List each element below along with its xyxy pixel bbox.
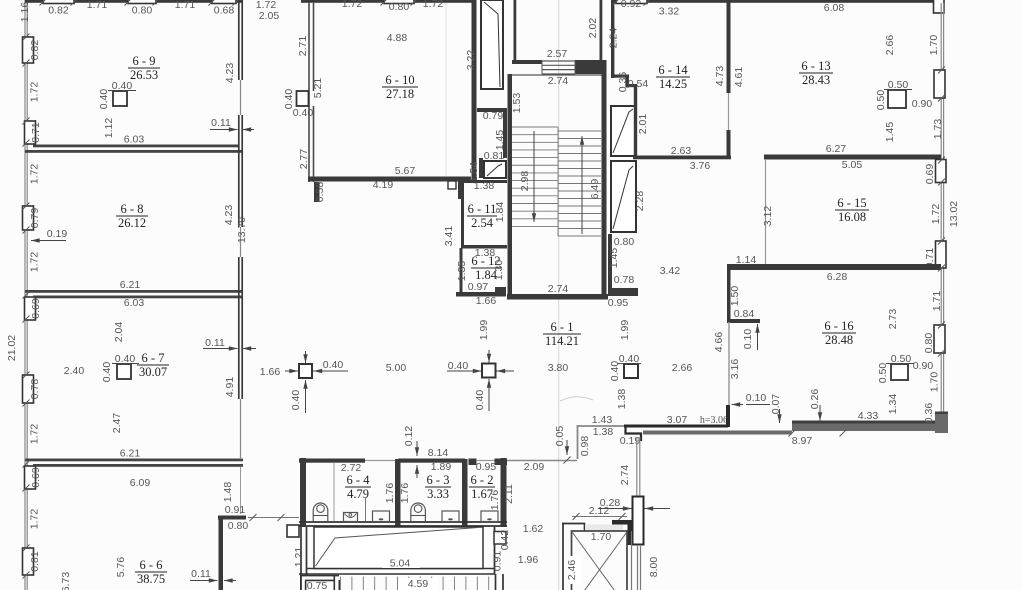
svg-text:1.66: 1.66	[260, 366, 281, 378]
svg-text:3.32: 3.32	[659, 6, 680, 18]
svg-text:3.16: 3.16	[729, 359, 741, 380]
svg-text:5.76: 5.76	[115, 557, 127, 578]
svg-text:1.34: 1.34	[887, 394, 899, 415]
svg-text:0.19: 0.19	[47, 228, 68, 240]
svg-text:1.72: 1.72	[29, 252, 41, 273]
svg-text:0.80: 0.80	[923, 333, 935, 354]
svg-text:1.48: 1.48	[222, 482, 234, 503]
svg-text:6.21: 6.21	[120, 448, 141, 460]
svg-text:0.40: 0.40	[293, 107, 314, 119]
svg-text:3.12: 3.12	[762, 206, 774, 227]
svg-text:6.08: 6.08	[824, 2, 845, 14]
svg-text:8.14: 8.14	[428, 447, 449, 459]
svg-text:4.59: 4.59	[408, 578, 429, 590]
svg-text:6 - 6: 6 - 6	[140, 558, 163, 572]
svg-text:26.53: 26.53	[130, 68, 158, 82]
svg-text:0.11: 0.11	[205, 337, 225, 349]
svg-text:2.02: 2.02	[587, 18, 599, 39]
svg-text:28.43: 28.43	[802, 73, 830, 87]
svg-text:1.72: 1.72	[342, 0, 363, 10]
svg-text:1.43: 1.43	[592, 414, 613, 426]
svg-text:4.23: 4.23	[223, 205, 235, 226]
svg-text:5.21: 5.21	[312, 78, 324, 99]
svg-text:0.36: 0.36	[923, 403, 935, 424]
svg-text:0.40: 0.40	[474, 390, 486, 411]
svg-text:1.21: 1.21	[293, 547, 305, 568]
svg-text:1.66: 1.66	[476, 295, 497, 307]
svg-text:2.12: 2.12	[589, 505, 610, 517]
svg-text:6.27: 6.27	[826, 143, 847, 155]
svg-text:6 - 9: 6 - 9	[133, 54, 156, 68]
svg-text:0.40: 0.40	[98, 89, 110, 110]
svg-text:4.33: 4.33	[858, 410, 879, 422]
svg-text:6 - 8: 6 - 8	[121, 202, 144, 216]
svg-text:0.92: 0.92	[621, 0, 642, 10]
svg-text:2.04: 2.04	[113, 322, 125, 343]
svg-text:1.96: 1.96	[518, 554, 539, 566]
svg-text:0.40: 0.40	[101, 362, 113, 383]
svg-text:8.97: 8.97	[792, 435, 813, 447]
svg-text:0.78: 0.78	[614, 274, 635, 286]
svg-text:0.79: 0.79	[483, 110, 504, 122]
svg-text:2.74: 2.74	[548, 283, 569, 295]
svg-text:6 - 2: 6 - 2	[471, 473, 494, 487]
svg-text:3.33: 3.33	[427, 487, 449, 501]
svg-text:4.88: 4.88	[387, 32, 408, 44]
svg-text:0.50: 0.50	[875, 90, 887, 111]
svg-text:1.73: 1.73	[932, 119, 944, 140]
svg-text:5.05: 5.05	[842, 159, 863, 171]
svg-text:6 - 13: 6 - 13	[801, 59, 830, 73]
svg-text:0.97: 0.97	[468, 281, 489, 293]
svg-text:6 - 3: 6 - 3	[427, 473, 450, 487]
svg-text:1.89: 1.89	[431, 461, 452, 473]
svg-text:0.69: 0.69	[924, 164, 936, 185]
svg-text:1.45: 1.45	[608, 248, 620, 269]
svg-text:2.66: 2.66	[672, 362, 693, 374]
svg-text:0.84: 0.84	[734, 308, 755, 320]
svg-text:1.71: 1.71	[931, 291, 943, 312]
svg-text:1.12: 1.12	[103, 118, 115, 139]
svg-text:4.23: 4.23	[224, 63, 236, 84]
svg-text:2.57: 2.57	[547, 48, 568, 60]
svg-text:0.95: 0.95	[608, 297, 629, 309]
svg-text:6.49: 6.49	[589, 179, 601, 200]
svg-text:3.42: 3.42	[660, 265, 681, 277]
svg-text:0.26: 0.26	[809, 389, 821, 410]
svg-text:2.73: 2.73	[887, 309, 899, 330]
svg-text:2.47: 2.47	[111, 413, 123, 434]
svg-text:6 - 10: 6 - 10	[385, 73, 414, 87]
svg-text:16.08: 16.08	[838, 210, 866, 224]
svg-text:13.70: 13.70	[236, 217, 248, 243]
svg-text:114.21: 114.21	[545, 334, 579, 348]
svg-text:6.28: 6.28	[827, 271, 848, 283]
svg-text:1.72: 1.72	[930, 204, 942, 225]
svg-text:1.72: 1.72	[29, 164, 41, 185]
svg-text:6 - 16: 6 - 16	[824, 319, 853, 333]
svg-text:0.07: 0.07	[770, 394, 782, 415]
svg-text:1.72: 1.72	[29, 82, 41, 103]
svg-text:1.72: 1.72	[29, 424, 41, 445]
svg-text:0.10: 0.10	[742, 329, 754, 350]
svg-text:0.75: 0.75	[307, 580, 328, 590]
svg-text:0.80: 0.80	[614, 236, 635, 248]
svg-text:4.61: 4.61	[733, 67, 745, 88]
svg-text:28.48: 28.48	[825, 333, 853, 347]
svg-text:3.07: 3.07	[667, 414, 688, 426]
svg-text:0.82: 0.82	[48, 5, 69, 17]
svg-text:0.40: 0.40	[323, 359, 344, 371]
svg-text:6 - 11: 6 - 11	[468, 202, 497, 216]
svg-text:1.84: 1.84	[494, 202, 506, 223]
svg-text:6.03: 6.03	[124, 297, 145, 309]
svg-text:2.66: 2.66	[884, 35, 896, 56]
svg-text:2.71: 2.71	[297, 36, 309, 57]
svg-text:1.71: 1.71	[175, 0, 196, 11]
svg-text:1.14: 1.14	[736, 254, 757, 266]
svg-text:21.02: 21.02	[6, 335, 18, 361]
svg-text:1.45: 1.45	[884, 122, 896, 143]
svg-text:2.98: 2.98	[519, 171, 531, 192]
svg-text:8.00: 8.00	[648, 557, 660, 578]
svg-text:1.71: 1.71	[87, 0, 108, 11]
svg-text:1.70: 1.70	[929, 372, 941, 393]
svg-text:3.80: 3.80	[548, 362, 569, 374]
svg-text:6.03: 6.03	[124, 134, 145, 146]
svg-text:1.30: 1.30	[493, 260, 505, 281]
svg-text:1.72: 1.72	[423, 0, 444, 10]
svg-text:1.62: 1.62	[523, 523, 544, 535]
svg-text:2.54: 2.54	[471, 216, 494, 230]
svg-text:0.40: 0.40	[609, 361, 621, 382]
svg-text:6.09: 6.09	[130, 477, 151, 489]
svg-text:1.70: 1.70	[591, 531, 612, 543]
svg-text:14.25: 14.25	[659, 77, 687, 91]
svg-text:3.22: 3.22	[465, 50, 477, 71]
svg-text:1.38: 1.38	[616, 389, 628, 410]
svg-text:6 - 7: 6 - 7	[142, 351, 165, 365]
svg-text:0.58: 0.58	[314, 182, 326, 203]
svg-text:5.04: 5.04	[390, 558, 411, 570]
svg-text:0.42: 0.42	[499, 530, 511, 551]
svg-text:2.11: 2.11	[503, 484, 515, 504]
svg-text:1.38: 1.38	[593, 426, 614, 438]
svg-text:0.78: 0.78	[29, 379, 41, 400]
svg-text:0.80: 0.80	[389, 1, 410, 13]
svg-text:2.09: 2.09	[524, 461, 545, 473]
svg-text:1.45: 1.45	[494, 130, 506, 151]
svg-text:0.11: 0.11	[211, 117, 231, 129]
svg-text:0.40: 0.40	[290, 390, 302, 411]
svg-text:0.50: 0.50	[877, 363, 889, 384]
svg-text:0.80: 0.80	[228, 520, 249, 532]
svg-text:0.80: 0.80	[132, 5, 153, 17]
svg-text:0.95: 0.95	[476, 461, 497, 473]
svg-text:6 - 1: 6 - 1	[551, 320, 574, 334]
svg-text:0.98: 0.98	[579, 436, 591, 457]
svg-text:1.16: 1.16	[19, 2, 31, 23]
svg-text:2.24: 2.24	[608, 28, 620, 49]
svg-text:0.12: 0.12	[403, 426, 415, 447]
svg-text:6 - 15: 6 - 15	[837, 196, 866, 210]
svg-text:0.91: 0.91	[225, 504, 246, 516]
svg-text:3.41: 3.41	[443, 226, 455, 247]
svg-text:1.76: 1.76	[384, 483, 396, 504]
svg-text:1.53: 1.53	[511, 93, 523, 114]
svg-text:2.01: 2.01	[637, 114, 649, 135]
svg-text:6 - 4: 6 - 4	[347, 473, 371, 487]
svg-text:1.35: 1.35	[456, 261, 468, 282]
svg-text:38.75: 38.75	[137, 572, 165, 586]
svg-text:4.19: 4.19	[373, 179, 394, 191]
svg-text:2.46: 2.46	[566, 560, 578, 581]
svg-text:0.40: 0.40	[448, 360, 469, 372]
svg-text:6.73: 6.73	[60, 572, 72, 590]
svg-text:13.02: 13.02	[948, 201, 960, 227]
svg-text:4.91: 4.91	[224, 377, 236, 398]
svg-text:0.69: 0.69	[30, 467, 42, 488]
svg-text:27.18: 27.18	[386, 87, 414, 101]
svg-text:0.11: 0.11	[191, 568, 211, 580]
svg-text:0.90: 0.90	[913, 360, 934, 372]
svg-text:h=3.06: h=3.06	[700, 415, 728, 426]
svg-text:1.50: 1.50	[729, 286, 741, 307]
svg-text:0.05: 0.05	[554, 426, 566, 447]
svg-text:0.82: 0.82	[29, 40, 41, 61]
svg-text:2.74: 2.74	[548, 75, 569, 87]
svg-text:5.00: 5.00	[386, 362, 407, 374]
svg-text:4.66: 4.66	[713, 332, 725, 353]
svg-text:1.76: 1.76	[399, 483, 411, 504]
svg-text:0.79: 0.79	[29, 208, 41, 229]
svg-text:1.72: 1.72	[29, 509, 41, 530]
svg-text:1.99: 1.99	[478, 320, 490, 341]
svg-text:1.99: 1.99	[619, 320, 631, 341]
svg-text:5.67: 5.67	[395, 165, 416, 177]
svg-text:30.07: 30.07	[139, 365, 167, 379]
svg-text:2.63: 2.63	[671, 145, 692, 157]
svg-text:1.70: 1.70	[928, 35, 940, 56]
svg-text:0.90: 0.90	[912, 98, 933, 110]
svg-text:2.40: 2.40	[64, 365, 85, 377]
svg-text:2.74: 2.74	[619, 465, 631, 486]
svg-text:2.05: 2.05	[259, 10, 280, 22]
svg-text:0.69: 0.69	[30, 298, 42, 319]
svg-text:6 - 14: 6 - 14	[658, 63, 688, 77]
svg-text:2.77: 2.77	[298, 149, 310, 170]
svg-text:2.28: 2.28	[634, 191, 646, 212]
svg-text:1.38: 1.38	[474, 180, 495, 192]
svg-text:26.12: 26.12	[118, 216, 146, 230]
svg-text:0.10: 0.10	[746, 392, 767, 404]
svg-text:0.71: 0.71	[30, 122, 42, 143]
svg-text:1.76: 1.76	[489, 490, 501, 511]
svg-text:0.68: 0.68	[214, 5, 235, 17]
svg-text:3.76: 3.76	[690, 160, 711, 172]
svg-text:0.81: 0.81	[29, 551, 41, 572]
svg-text:4.73: 4.73	[714, 66, 726, 87]
svg-text:6.21: 6.21	[120, 279, 141, 291]
svg-text:0.54: 0.54	[628, 78, 649, 90]
